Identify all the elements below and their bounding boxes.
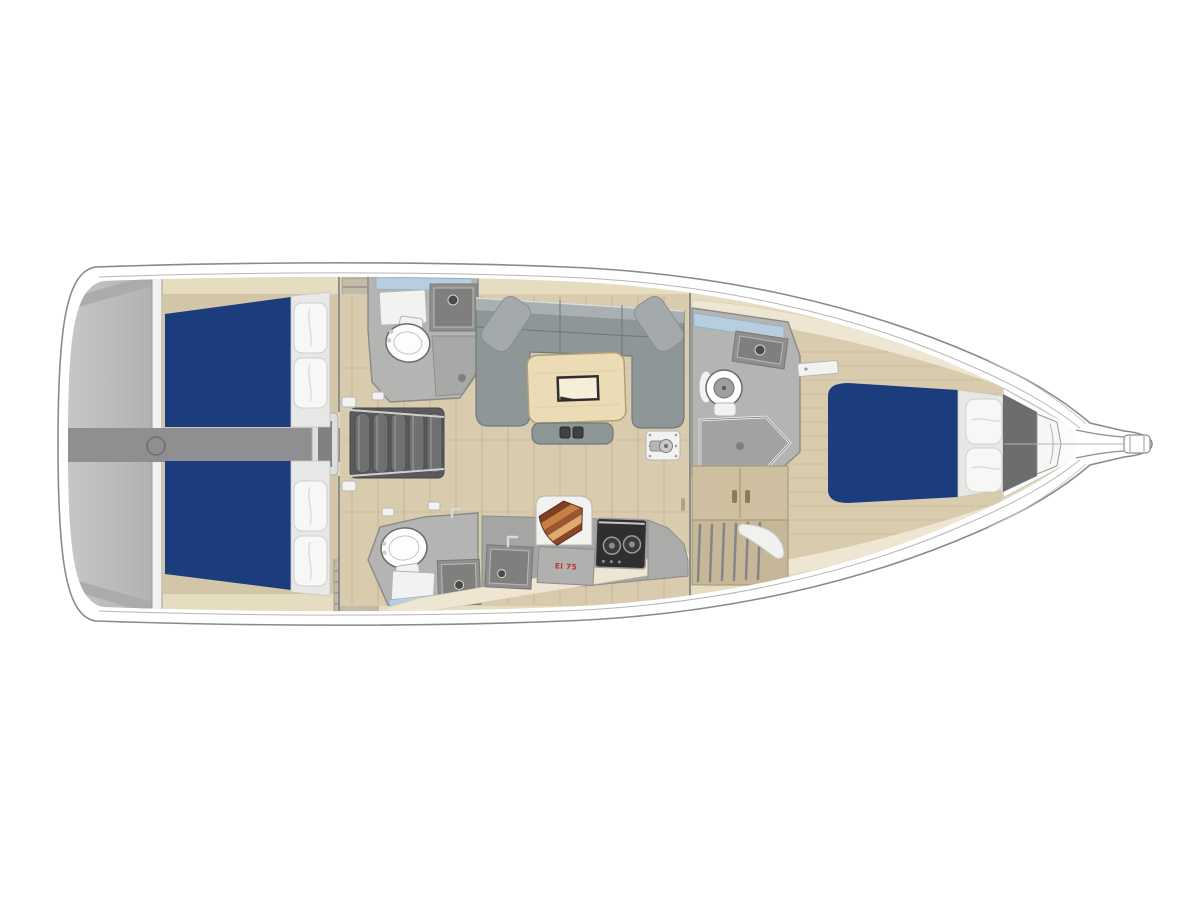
table-recess [558, 376, 599, 400]
handrail-fitting [342, 397, 356, 407]
interior: El 75 [60, 260, 1090, 640]
corridor-door-leaf [318, 421, 332, 467]
berth-forward-mattress [828, 383, 958, 503]
shower-drain [458, 374, 466, 382]
sink-drain [755, 345, 765, 355]
cup [560, 427, 570, 438]
cabinet-handle [745, 490, 750, 503]
cabin-door-open [797, 360, 838, 376]
sink-drain [497, 569, 505, 577]
handrail-fitting [342, 481, 356, 491]
sink-drain [448, 295, 458, 305]
stove [595, 518, 647, 569]
companionway-stairs [342, 397, 444, 491]
berth-starboard-mattress [165, 461, 291, 590]
head-port [368, 276, 478, 402]
mast-foot [646, 431, 680, 460]
shower-drain [736, 442, 744, 450]
fridge-label: El 75 [555, 561, 578, 571]
door-handle [681, 498, 685, 511]
pillow [966, 448, 1002, 492]
head-forward [692, 308, 800, 477]
berth-port-mattress [165, 297, 291, 427]
forward-wardrobe [692, 466, 788, 585]
door-hardware [382, 508, 394, 516]
yacht-floor-plan: El 75 [0, 0, 1200, 899]
door-hardware [428, 502, 440, 510]
fridge-front: El 75 [537, 547, 595, 586]
forward-cabin-berth [828, 383, 1004, 503]
anchor-roller [1124, 435, 1150, 453]
cabinet-handle [732, 490, 737, 503]
yacht-floor-plan-page: El 75 [0, 0, 1200, 899]
sink-drain [454, 580, 463, 589]
door-hardware [372, 392, 384, 400]
cup [573, 427, 583, 438]
